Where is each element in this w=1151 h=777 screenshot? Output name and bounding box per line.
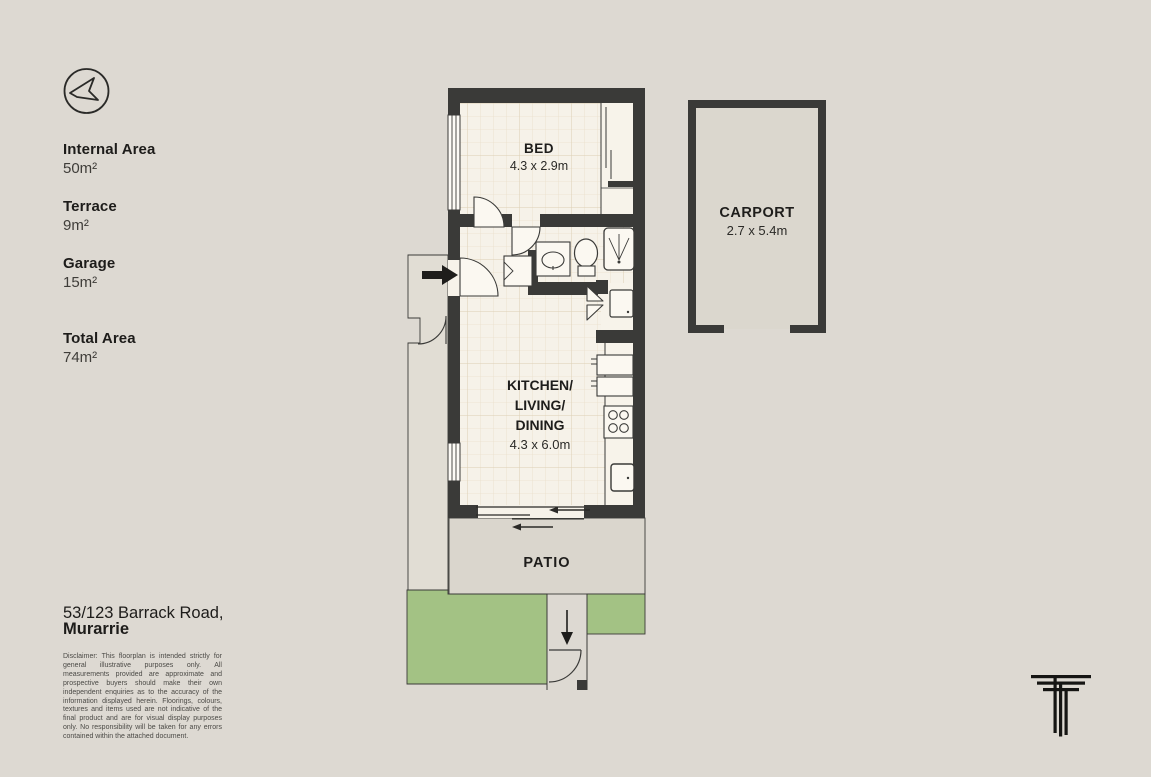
carport-label: CARPORT	[719, 205, 794, 221]
bed-dims: 4.3 x 2.9m	[510, 159, 568, 173]
patio-label: PATIO	[523, 555, 570, 571]
kitchen-label-3: DINING	[516, 417, 565, 433]
washer-icon	[610, 290, 633, 317]
cooktop-icon	[604, 406, 633, 438]
yard	[407, 590, 645, 690]
bed-label: BED	[524, 141, 554, 156]
lawn-right	[587, 594, 645, 634]
gate-door	[549, 650, 587, 690]
entry-porch	[408, 255, 448, 590]
living-window	[448, 443, 460, 481]
vanity-sink-icon	[536, 242, 570, 276]
triple-t-logo-icon	[1031, 675, 1091, 737]
lawn-left	[407, 590, 547, 684]
kitchen-label-1: KITCHEN/	[507, 377, 573, 393]
shower-icon	[604, 228, 634, 270]
kitchen-sink-icon	[611, 464, 634, 491]
kitchen-label-2: LIVING/	[515, 397, 566, 413]
floorplan-page: Internal Area 50m² Terrace 9m² Garage 15…	[0, 0, 1151, 777]
oven-icon	[591, 355, 633, 396]
patio: PATIO	[449, 518, 645, 594]
down-arrow-icon	[561, 610, 573, 645]
floor-plan: CARPORT 2.7 x 5.4m PATIO	[0, 0, 1151, 777]
kitchen-dims: 4.3 x 6.0m	[510, 437, 571, 452]
bed-window	[448, 115, 460, 210]
carport-dims: 2.7 x 5.4m	[727, 223, 788, 238]
hall-cupboard	[504, 256, 532, 286]
carport: CARPORT 2.7 x 5.4m	[688, 100, 826, 333]
toilet-icon	[575, 239, 598, 276]
